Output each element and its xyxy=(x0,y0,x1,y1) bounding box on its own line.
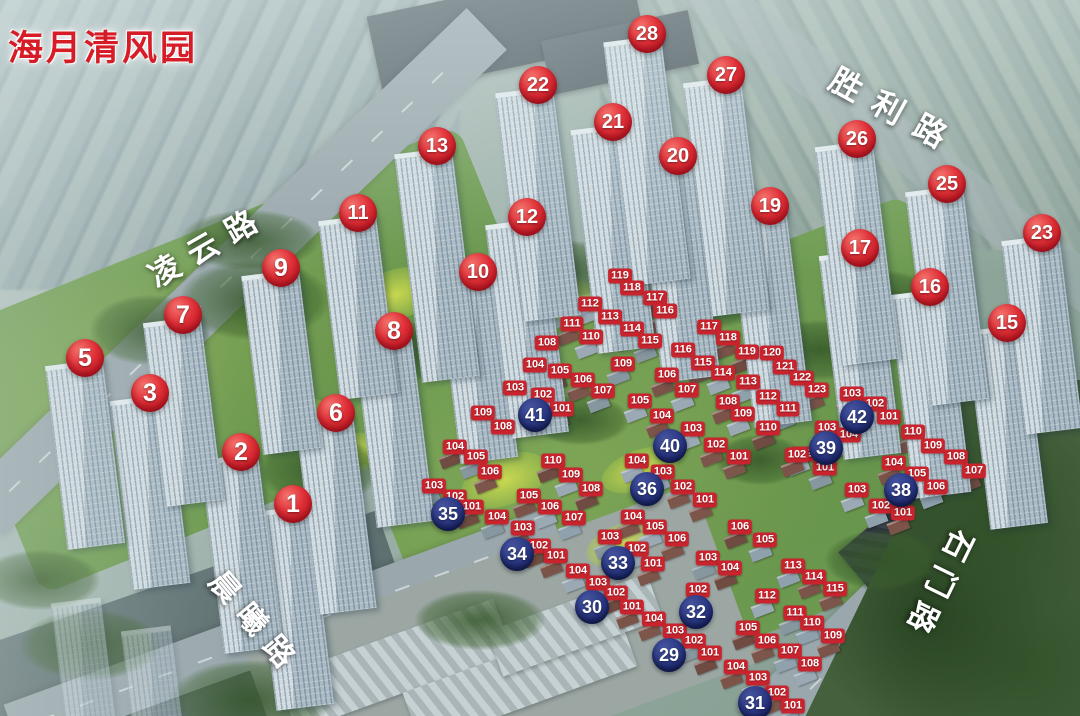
road-labels-layer: 凌云路胜利路晨曦路石门路 xyxy=(0,0,1080,716)
road-label: 晨曦路 xyxy=(201,560,316,685)
road-label: 凌云路 xyxy=(139,191,276,296)
road-label: 石门路 xyxy=(895,523,987,650)
site-plan-image: 1191181171121161131111171141101181151081… xyxy=(0,0,1080,716)
project-title: 海月清风园 xyxy=(8,20,198,71)
road-label: 胜利路 xyxy=(822,55,970,165)
